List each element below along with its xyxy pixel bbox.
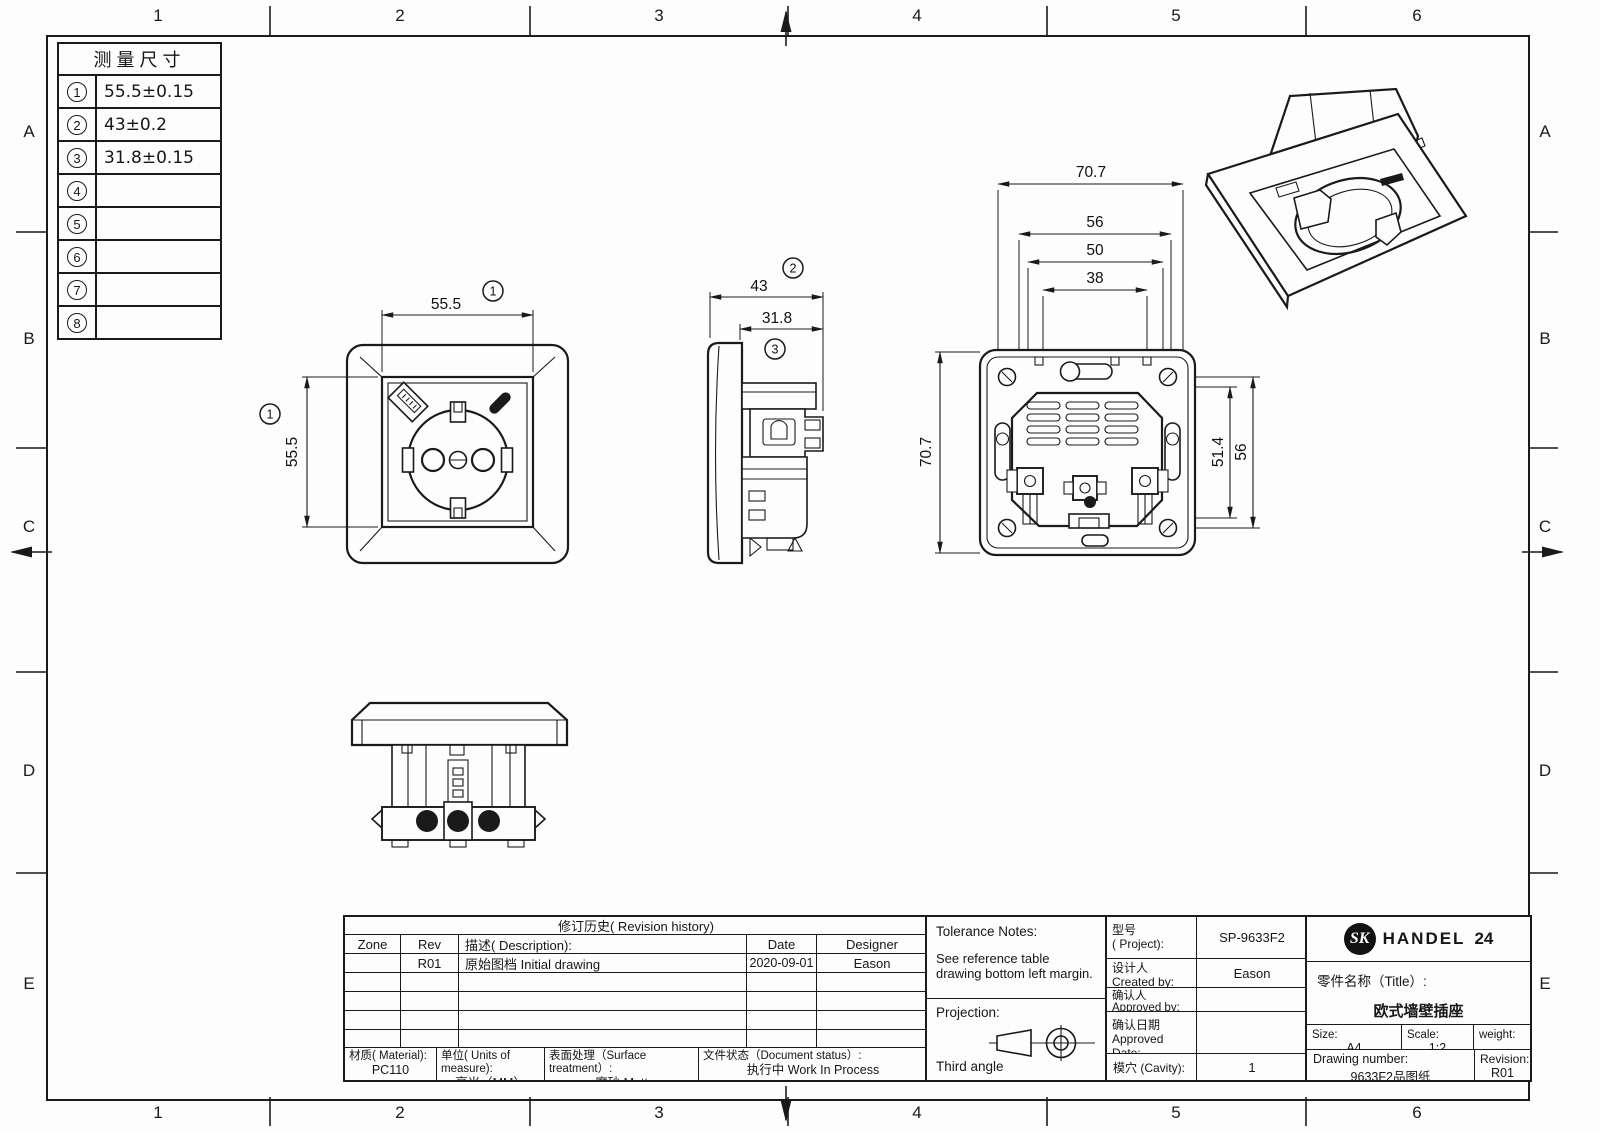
brand-number: 24 <box>1474 929 1493 949</box>
rev-description: 原始图档 Initial drawing <box>459 954 747 973</box>
units-cell: 单位( Units of measure): 毫米（MM） <box>437 1048 545 1080</box>
grid-col-label: 6 <box>1412 6 1421 26</box>
measure-value <box>97 241 220 272</box>
grid-row-label: A <box>16 122 42 142</box>
table-row: 8 <box>59 307 220 338</box>
created-by-value: Eason <box>1197 959 1307 988</box>
col-header-date: Date <box>747 935 817 954</box>
dim-label: 50 <box>1086 242 1104 259</box>
center-arrow-top-icon <box>781 10 792 32</box>
ref-bubble: 5 <box>67 214 87 234</box>
ref-bubble: 4 <box>67 181 87 201</box>
units-label: 单位( Units of measure): <box>441 1050 540 1076</box>
measure-value <box>97 208 220 239</box>
drawing-number-value: 9633F2品图纸 <box>1313 1066 1468 1080</box>
grid-col-label: 1 <box>153 6 162 26</box>
grid-row-label: C <box>1532 517 1558 537</box>
cavity-label: 模穴 (Cavity): <box>1107 1054 1197 1080</box>
ref-number: 2 <box>790 262 797 276</box>
surface-value: 磨砂 Matt <box>549 1077 694 1080</box>
measure-value: 31.8±0.15 <box>97 142 220 173</box>
grid-col-label: 1 <box>153 1103 162 1123</box>
col-header-zone: Zone <box>345 935 401 954</box>
usb-c-port-icon <box>487 390 512 415</box>
measurement-table: 测量尺寸 155.5±0.15 243±0.2 331.8±0.15 4 5 6… <box>57 42 222 340</box>
project-label-zh: 型号 <box>1112 923 1191 937</box>
bottom-view-drawing <box>330 690 590 855</box>
revision-history-title: 修订历史( Revision history) <box>345 917 927 935</box>
table-row: 4 <box>59 175 220 208</box>
grid-col-label: 3 <box>654 6 663 26</box>
col-header-designer: Designer <box>817 935 927 954</box>
projection-value: Third angle <box>936 1059 1004 1074</box>
approved-date-label-en: Approved Date: <box>1112 1032 1191 1054</box>
ref-number: 1 <box>267 408 274 422</box>
tolerance-title: Tolerance Notes: <box>936 924 1098 939</box>
brand-name: HANDEL <box>1383 929 1466 949</box>
center-arrow-right-icon <box>1542 547 1564 558</box>
ref-number: 3 <box>772 343 779 357</box>
cavity-value: 1 <box>1197 1054 1307 1080</box>
approved-by-label-en: Approved by: <box>1112 1002 1191 1012</box>
approved-by-value <box>1197 988 1307 1012</box>
part-title-label: 零件名称（Title）: <box>1317 970 1520 990</box>
dim-label: 38 <box>1086 270 1103 287</box>
weight-label: weight: <box>1479 1029 1515 1041</box>
grid-col-label: 5 <box>1171 6 1180 26</box>
drawing-sheet: 1 2 3 4 5 6 1 2 3 4 5 6 A B C D E A B C … <box>0 0 1600 1131</box>
material-cell: 材质( Material): PC110 <box>345 1048 437 1080</box>
rev-zone <box>345 954 401 973</box>
rev-designer: Eason <box>817 954 927 973</box>
size-label: Size: <box>1312 1029 1338 1041</box>
grid-row-label: D <box>1532 761 1558 781</box>
revision-label: Revision: <box>1480 1052 1529 1066</box>
grid-row-label: D <box>16 761 42 781</box>
table-row: 5 <box>59 208 220 241</box>
front-view-drawing: 55.5 1 55.5 1 <box>250 262 580 572</box>
grid-col-label: 4 <box>912 1103 921 1123</box>
company-logo: SK HANDEL 24 <box>1307 917 1530 962</box>
status-value: 执行中 Work In Process <box>703 1064 923 1077</box>
grid-row-label: E <box>16 974 42 994</box>
measurement-table-title: 测量尺寸 <box>59 44 220 76</box>
col-header-rev: Rev <box>401 935 459 954</box>
dim-label-height: 55.5 <box>284 437 301 467</box>
status-label: 文件状态（Document status）: <box>703 1050 923 1063</box>
grid-row-label: B <box>1532 329 1558 349</box>
col-header-description: 描述( Description): <box>459 935 747 954</box>
table-row: 6 <box>59 241 220 274</box>
dim-label: 51.4 <box>1210 437 1227 468</box>
center-arrow-left-icon <box>10 547 32 558</box>
isometric-view-drawing <box>1190 80 1490 330</box>
material-value: PC110 <box>349 1064 432 1077</box>
revision-value: R01 <box>1480 1066 1525 1080</box>
dim-label-width: 55.5 <box>431 296 461 313</box>
grid-row-label: E <box>1532 974 1558 994</box>
surface-cell: 表面处理（Surface treatment）: 磨砂 Matt <box>545 1048 699 1080</box>
ref-bubble: 3 <box>67 148 87 168</box>
project-value: SP-9633F2 <box>1197 917 1307 959</box>
grid-col-label: 3 <box>654 1103 663 1123</box>
grid-col-label: 4 <box>912 6 921 26</box>
revision-history-section: 修订历史( Revision history) Zone Rev 描述( Des… <box>345 917 927 1080</box>
part-title-value: 欧式墙壁插座 <box>1317 1000 1520 1021</box>
measure-value <box>97 175 220 206</box>
grid-col-label: 2 <box>395 6 404 26</box>
project-info-section: 型号 ( Project): SP-9633F2 设计人 Created by:… <box>1107 917 1307 1080</box>
grid-col-label: 2 <box>395 1103 404 1123</box>
drawing-number-label: Drawing number: <box>1313 1052 1408 1066</box>
created-by-label-zh: 设计人 <box>1112 961 1191 975</box>
ref-bubble: 8 <box>67 313 87 333</box>
ref-bubble: 7 <box>67 280 87 300</box>
ref-bubble: 2 <box>67 115 87 135</box>
surface-label: 表面处理（Surface treatment）: <box>549 1050 694 1076</box>
table-row: 7 <box>59 274 220 307</box>
dim-label: 56 <box>1086 214 1103 231</box>
ref-number: 1 <box>490 285 497 299</box>
size-value: A4 <box>1312 1041 1396 1050</box>
ref-bubble: 6 <box>67 247 87 267</box>
material-label: 材质( Material): <box>349 1050 432 1063</box>
sk-monogram-icon: SK <box>1344 923 1376 955</box>
dim-label: 70.7 <box>1076 164 1106 181</box>
approved-date-value <box>1197 1012 1307 1054</box>
side-view-drawing: 43 2 31.8 3 <box>655 248 890 583</box>
grid-row-label: B <box>16 329 42 349</box>
created-by-label-en: Created by: <box>1112 975 1191 988</box>
units-value: 毫米（MM） <box>441 1077 540 1080</box>
approved-by-label-zh: 确认人 <box>1112 990 1191 1002</box>
usb-a-port-icon <box>388 382 428 422</box>
dim-label-body-depth: 31.8 <box>762 310 792 327</box>
status-cell: 文件状态（Document status）: 执行中 Work In Proce… <box>699 1048 927 1080</box>
measure-value: 55.5±0.15 <box>97 76 220 107</box>
table-row: 243±0.2 <box>59 109 220 142</box>
project-label-en: ( Project): <box>1112 937 1191 951</box>
measure-value <box>97 307 220 338</box>
dim-label-depth: 43 <box>750 278 767 295</box>
measure-value <box>97 274 220 305</box>
rev-rev: R01 <box>401 954 459 973</box>
grid-row-label: A <box>1532 122 1558 142</box>
dim-label: 70.7 <box>918 437 935 467</box>
projection-label: Projection: <box>936 1005 1098 1020</box>
center-arrow-bottom-icon <box>781 1100 792 1122</box>
grid-row-label: C <box>16 517 42 537</box>
tolerance-projection-section: Tolerance Notes: See reference table dra… <box>927 917 1107 1080</box>
grid-col-label: 5 <box>1171 1103 1180 1123</box>
title-block: 修订历史( Revision history) Zone Rev 描述( Des… <box>343 915 1532 1082</box>
tolerance-note-line2: drawing bottom left margin. <box>936 966 1098 981</box>
measure-value: 43±0.2 <box>97 109 220 140</box>
table-row: 331.8±0.15 <box>59 142 220 175</box>
approved-date-label-zh: 确认日期 <box>1112 1018 1191 1032</box>
scale-label: Scale: <box>1407 1029 1439 1041</box>
ref-bubble: 1 <box>67 82 87 102</box>
table-row: 155.5±0.15 <box>59 76 220 109</box>
grid-col-label: 6 <box>1412 1103 1421 1123</box>
brand-section: SK HANDEL 24 零件名称（Title）: 欧式墙壁插座 Size: A… <box>1307 917 1530 1080</box>
rev-date: 2020-09-01 <box>747 954 817 973</box>
tolerance-note-line1: See reference table <box>936 951 1098 966</box>
dim-label: 56 <box>1233 443 1250 460</box>
scale-value: 1:2 <box>1407 1041 1468 1050</box>
third-angle-projection-icon <box>989 1023 1097 1063</box>
